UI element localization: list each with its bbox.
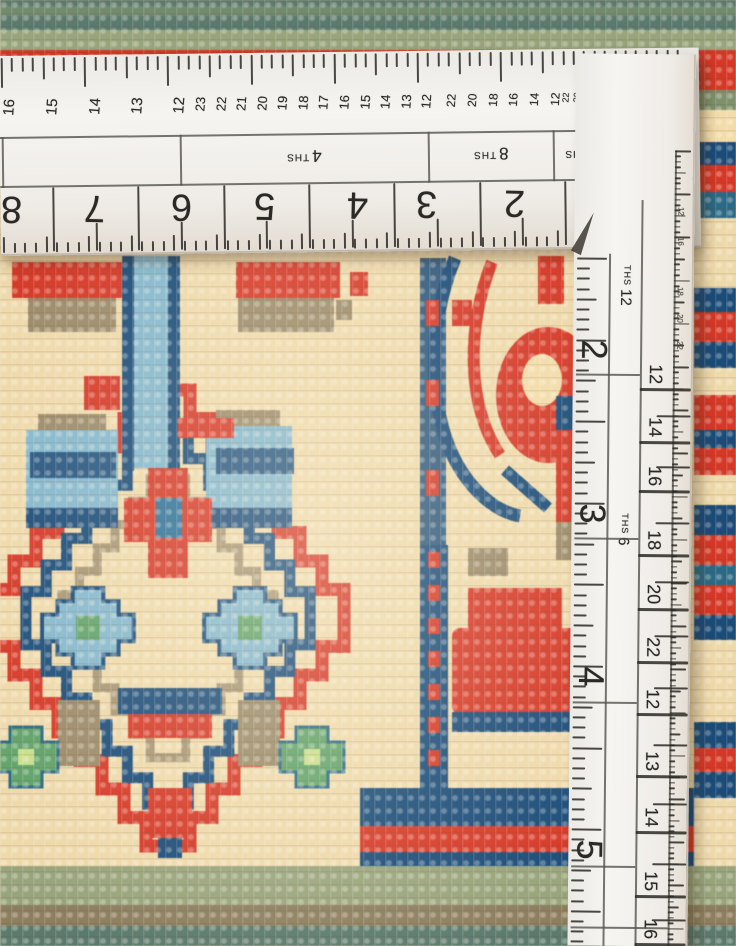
tick [290,239,292,249]
tick [365,239,367,249]
tick [385,53,387,67]
scale-number: 14 [87,96,103,117]
tick [229,55,231,69]
tick [546,236,548,246]
tick [53,57,55,71]
tick [157,56,159,70]
photo-rug-with-l-square: 1615141312232221201918171615141312222018… [0,0,736,946]
inch-line [574,537,638,540]
tick [541,51,543,73]
tick [258,234,260,250]
tick [375,53,377,75]
inch-line [573,701,637,704]
scale-number: 14 [378,91,392,112]
vertical-ruler-arm: 2345 THS12THS6 1214161820221213141516 12… [567,53,696,946]
bottom-edge-tick-strip [1,206,601,253]
scale-number: 17 [316,92,330,113]
tick [115,57,117,71]
tick [271,55,273,69]
tick [45,236,47,252]
tick [141,241,143,251]
tick [458,52,460,74]
tick [195,241,197,251]
tick [35,243,37,253]
scale-number: 23 [193,94,207,115]
tick [493,237,495,247]
tick [163,241,165,251]
tick [333,239,335,249]
inch-line [571,926,668,929]
tick [99,242,101,252]
tick [88,236,90,252]
tick [525,237,527,247]
tick [281,55,283,69]
scale-number: 14 [527,89,540,110]
tick [461,237,463,247]
tick [198,56,200,70]
tick [489,52,491,66]
tick [125,56,127,78]
scale-number: 22 [214,93,228,114]
tick [219,55,221,69]
scale-number: 15 [358,92,372,113]
tick [440,238,442,248]
tick [136,56,138,70]
tick [73,57,75,71]
chain-dash [428,618,440,634]
scale-number: 12 [419,91,433,112]
chain-dash [428,717,440,733]
tick [386,232,388,248]
tick [322,239,324,249]
tick [24,243,26,253]
tick [269,240,271,250]
tick [397,238,399,248]
tick [521,52,523,66]
tick [418,238,420,248]
tick [427,53,429,67]
tick [437,53,439,67]
tick [280,240,282,250]
tick [1,58,3,88]
tick [84,57,86,87]
tick [500,52,502,82]
tick [177,56,179,70]
rug-palmette [336,256,600,813]
scale-number: 16 [1,97,17,118]
scale-number: 22 [561,87,571,108]
tick [535,236,537,246]
tick [250,55,252,85]
cell-divider [2,137,5,188]
tick [105,57,107,71]
scale-number: 18 [486,90,499,111]
scale-number: 20 [465,90,478,111]
tick [3,237,5,253]
tick [510,52,512,66]
tick [573,51,575,65]
tick [216,234,218,250]
tick [562,51,564,65]
tick [120,242,122,252]
tick [552,51,554,65]
scale-number: 19 [275,93,289,114]
inch-line-group [567,53,694,946]
tick [344,233,346,249]
tick [323,54,325,68]
ths-cell-unit: THS [286,151,309,162]
chain-dash [428,684,440,700]
chain-dash [428,585,440,601]
tick [209,55,211,77]
tick [313,54,315,68]
inch-line [576,373,640,376]
tick [469,52,471,66]
tick [167,56,169,86]
tick [396,53,398,67]
ths-cell-value: 8 [499,144,509,163]
tick [450,237,452,247]
scale-number: 16 [337,92,351,113]
tick [406,53,408,67]
tick [482,237,484,247]
tick [173,235,175,251]
tick [205,240,207,250]
tick [557,230,559,246]
tick [429,232,431,248]
cell-divider [180,135,183,186]
tick [354,54,356,68]
tick [248,240,250,250]
tick [333,54,335,84]
scale-number: 15 [44,96,60,117]
tick [240,55,242,69]
tick [344,54,346,68]
tick [131,235,133,251]
tick [479,52,481,66]
tick [376,238,378,248]
tick [514,231,516,247]
tick [471,231,473,247]
tick [354,239,356,249]
tick [184,241,186,251]
scale-number: 13 [399,91,413,112]
chain-dash [428,552,440,568]
tick [503,237,505,247]
tick [21,58,23,72]
tick [302,54,304,68]
tick [63,57,65,71]
tick [301,233,303,249]
chain-dash [428,750,440,766]
tick [94,57,96,71]
tick [109,242,111,252]
tick [32,58,34,72]
inch-line [571,865,635,868]
scale-number: 16 [506,89,519,110]
tick [77,242,79,252]
tick [448,52,450,66]
tick [292,54,294,76]
scale-number: 13 [129,95,145,116]
tick [42,57,44,79]
tick [146,56,148,70]
ths-cell-unit: THS [473,149,496,160]
ths-cell-value: 4 [312,146,322,165]
tick [56,242,58,252]
tick [237,240,239,250]
tick [365,54,367,68]
tick [408,238,410,248]
tick [227,240,229,250]
tick [261,55,263,69]
tick [152,241,154,251]
ths-cell-label: 4THS [264,147,344,165]
tick [11,58,13,72]
ths-cell-label: 8THS [450,145,530,163]
tick [67,242,69,252]
scale-number: 21 [234,93,248,114]
rug-medallion [0,256,344,858]
scale-number: 22 [445,90,458,111]
tick [531,51,533,65]
scale-number: 20 [255,93,269,114]
chain-dash [428,651,440,667]
scale-number: 12 [171,95,187,116]
scale-number: 18 [296,92,310,113]
tick [188,56,190,70]
cell-divider [428,132,431,183]
tick [312,239,314,249]
tick [14,243,16,253]
tick [417,53,419,83]
